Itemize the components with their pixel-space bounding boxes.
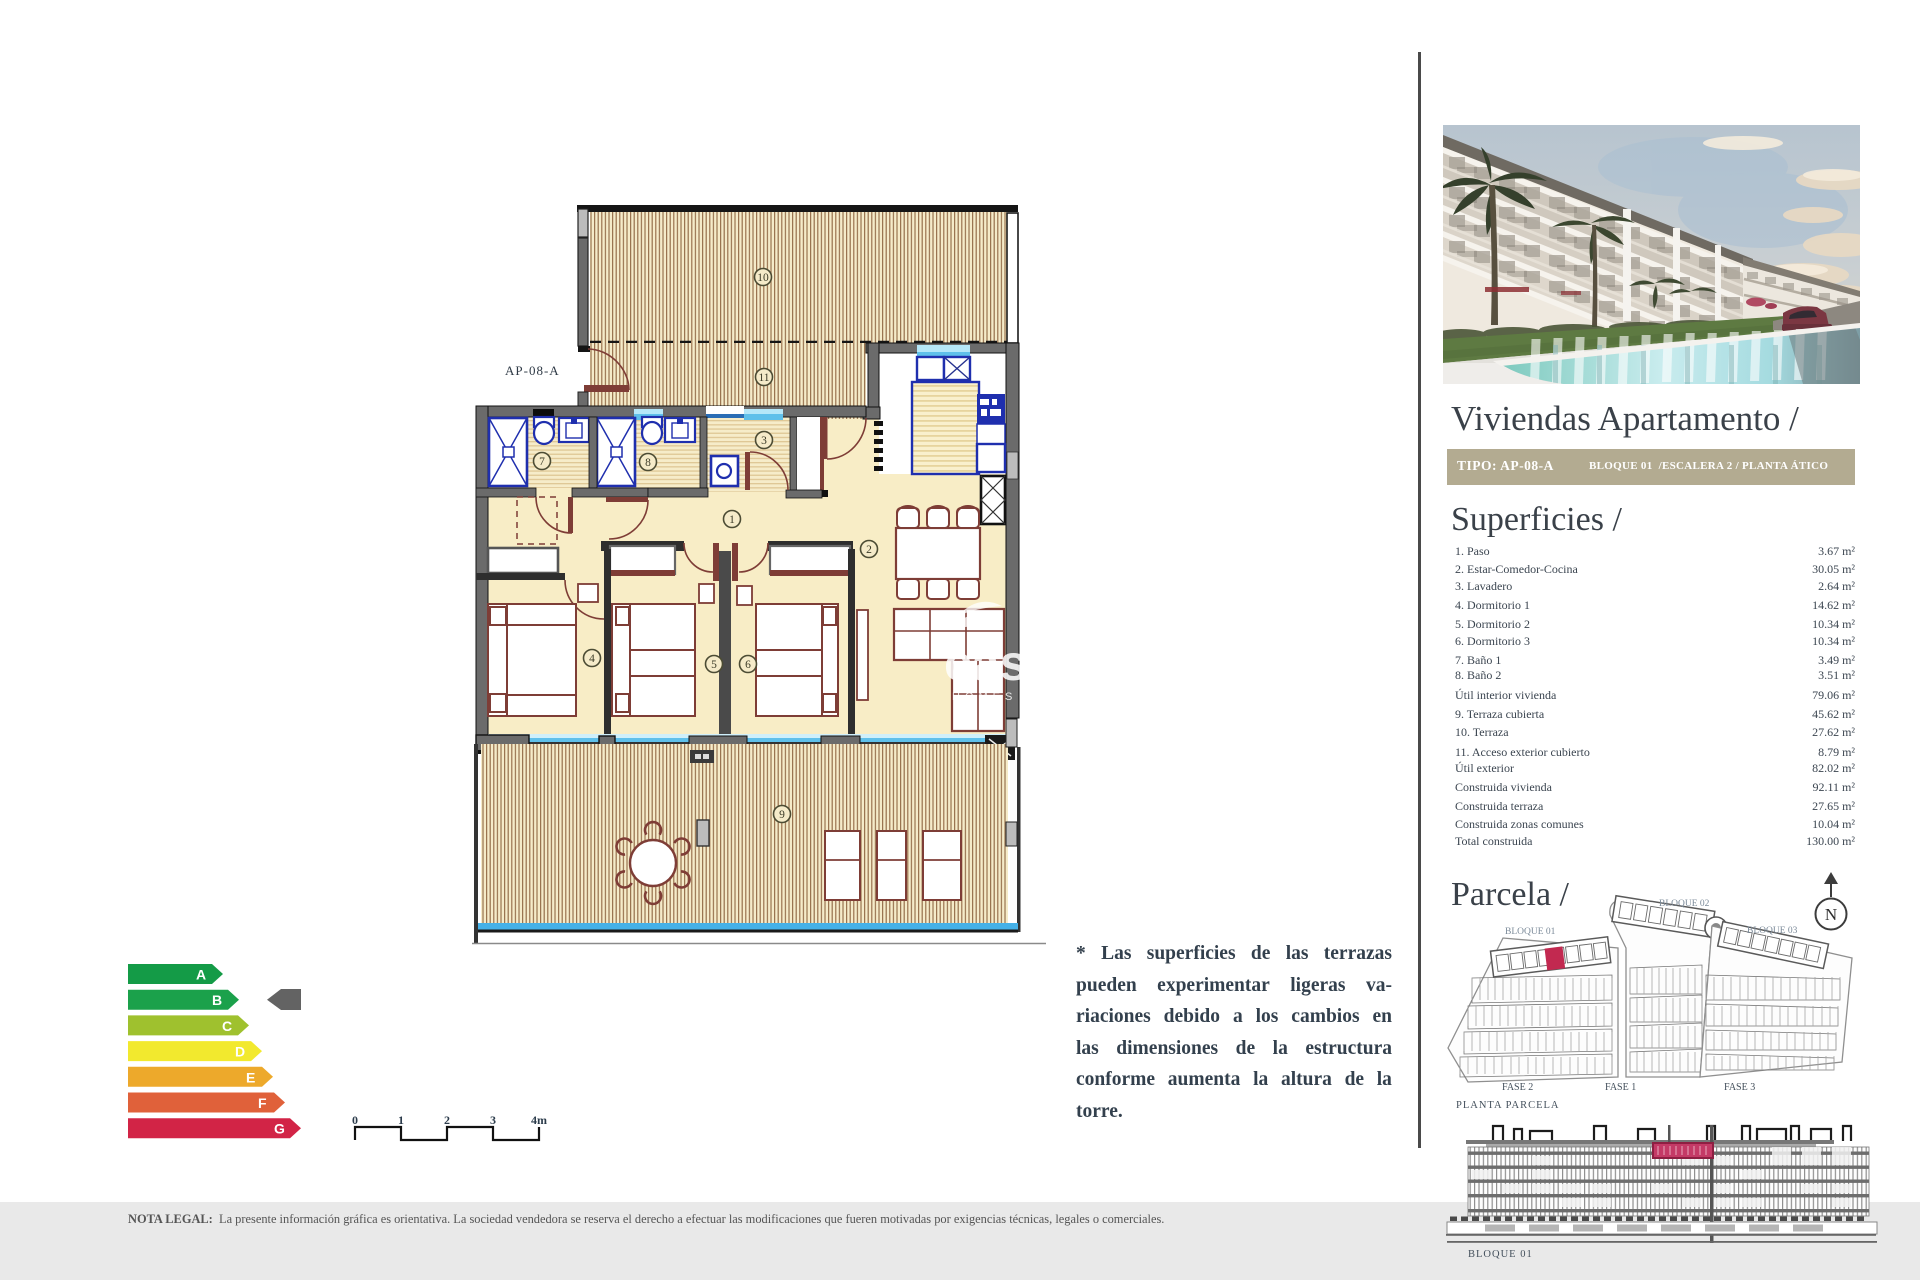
svg-text:3: 3 [490, 1113, 496, 1127]
svg-text:5: 5 [711, 659, 717, 671]
svg-text:3: 3 [761, 435, 767, 447]
svg-text:N: N [1825, 905, 1837, 924]
svg-text:1: 1 [398, 1113, 404, 1127]
svg-text:0: 0 [352, 1113, 358, 1127]
svg-text:FASE 2: FASE 2 [1502, 1082, 1533, 1093]
svg-text:FASE 3: FASE 3 [1724, 1082, 1755, 1093]
svg-text:casa: casa [944, 635, 1056, 691]
svg-text:7: 7 [539, 456, 545, 468]
svg-text:4: 4 [589, 653, 595, 665]
svg-text:C: C [222, 1018, 232, 1034]
svg-text:BLOQUE 03: BLOQUE 03 [1747, 926, 1798, 936]
svg-text:6: 6 [745, 659, 751, 671]
svg-text:B: B [212, 992, 222, 1008]
svg-text:10: 10 [757, 272, 769, 284]
svg-text:BLOQUE 01: BLOQUE 01 [1468, 1249, 1533, 1260]
svg-text:D: D [235, 1044, 245, 1060]
svg-text:8: 8 [645, 457, 651, 469]
svg-text:A: A [196, 967, 206, 983]
svg-text:2: 2 [866, 544, 872, 556]
svg-text:1: 1 [729, 514, 735, 526]
svg-text:F: F [258, 1095, 267, 1111]
svg-text:PLANTA PARCELA: PLANTA PARCELA [1456, 1100, 1560, 1111]
svg-text:FASE 1: FASE 1 [1605, 1082, 1636, 1093]
svg-text:E: E [246, 1069, 255, 1085]
svg-text:HOMES: HOMES [952, 691, 1017, 703]
svg-text:2: 2 [444, 1113, 450, 1127]
svg-text:G: G [274, 1121, 285, 1137]
svg-text:11: 11 [758, 372, 769, 384]
svg-text:BLOQUE 02: BLOQUE 02 [1659, 899, 1710, 909]
svg-text:9: 9 [779, 809, 785, 821]
svg-text:4m: 4m [531, 1113, 547, 1127]
svg-text:BLOQUE 01: BLOQUE 01 [1505, 927, 1556, 937]
svg-text:AP-08-A: AP-08-A [505, 363, 560, 378]
